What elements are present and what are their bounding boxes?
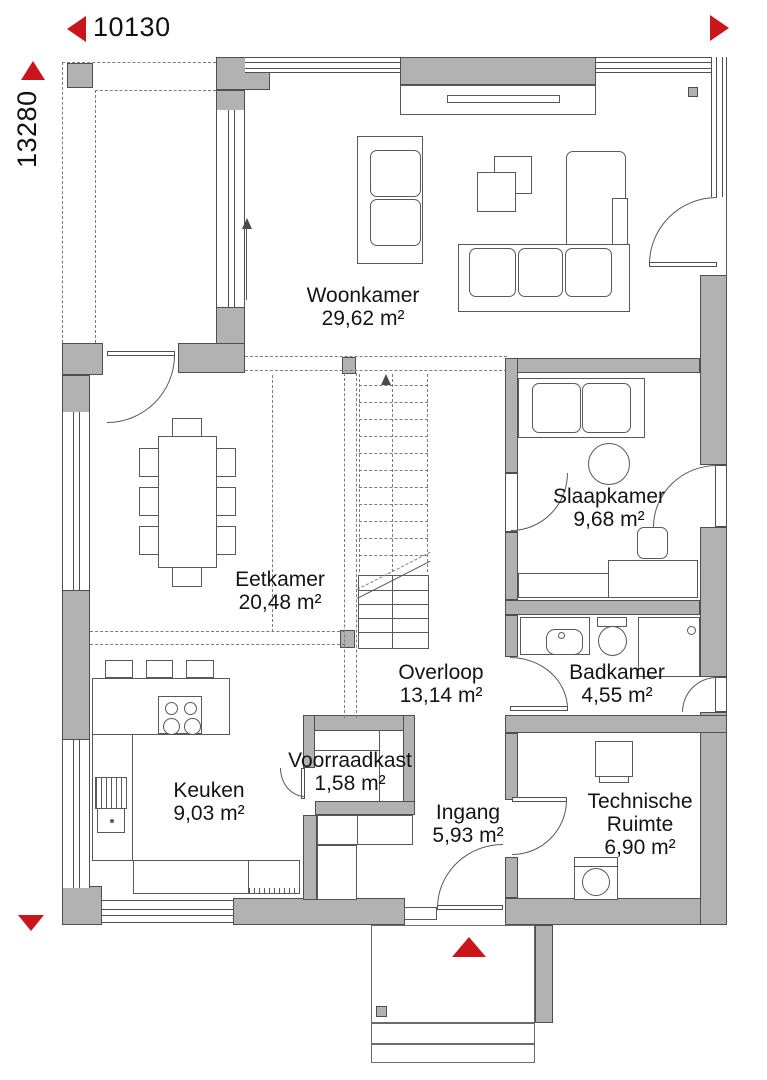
porch-pier — [535, 925, 553, 1023]
stairwell-dashed-line — [344, 373, 345, 718]
sofa-cushion — [518, 248, 563, 297]
room-label-keuken: Keuken 9,03 m² — [129, 779, 289, 825]
room-name: Badkamer — [537, 661, 697, 684]
width-arrow-icon — [67, 16, 86, 42]
drain-dot-icon — [110, 819, 114, 823]
bedroom-top-wall — [505, 358, 700, 373]
vide-dashed-line — [245, 356, 507, 357]
stair-tread — [359, 604, 428, 605]
window — [102, 900, 233, 923]
wall — [505, 615, 518, 657]
stair-tread — [359, 504, 428, 505]
wall-edge — [726, 197, 727, 277]
stair-tread — [359, 470, 428, 471]
room-label-slaapkamer: Slaapkamer 9,68 m² — [529, 485, 689, 531]
corner-sofa-frame — [612, 198, 628, 249]
stair-tread — [359, 402, 428, 403]
dining-chair — [139, 526, 159, 555]
desk-chair — [637, 527, 668, 559]
room-label-eetkamer: Eetkamer 20,48 m² — [200, 568, 360, 614]
column — [340, 630, 355, 648]
room-area: 9,03 m² — [129, 802, 289, 825]
wall-cabinet — [105, 660, 133, 678]
shower-drain-icon — [687, 626, 696, 635]
coffee-table — [477, 172, 516, 212]
height-arrow-icon — [21, 61, 45, 80]
stair-tread — [359, 618, 428, 619]
room-label-woonkamer: Woonkamer 29,62 m² — [283, 284, 443, 330]
window — [62, 740, 90, 888]
porch-step — [371, 1044, 535, 1063]
stairs-center-line — [392, 374, 393, 572]
stairs-edge — [427, 374, 428, 572]
desk-return — [518, 573, 609, 598]
window — [711, 57, 727, 197]
stairs-center-line — [392, 576, 393, 648]
right-arrow-icon — [710, 15, 729, 41]
room-area: 1,58 m² — [275, 772, 425, 795]
sofa-cushion — [469, 248, 516, 297]
window — [596, 57, 712, 73]
room-name: Overloop — [361, 661, 521, 684]
wall — [216, 307, 245, 344]
stair-tread — [359, 555, 428, 556]
terrace-dashed-line — [95, 90, 216, 91]
burner-icon — [165, 702, 178, 715]
sofa-cushion — [370, 150, 421, 197]
wall — [62, 343, 103, 375]
closet-divider — [357, 816, 358, 844]
room-area: 13,14 m² — [361, 684, 521, 707]
washing-machine-line — [575, 866, 617, 867]
dining-chair — [172, 567, 202, 587]
kitchen-dashed-line — [90, 631, 345, 632]
wall — [505, 733, 518, 800]
faucet-icon — [558, 632, 565, 639]
window — [62, 412, 90, 590]
wall — [505, 532, 518, 600]
wall — [178, 343, 245, 373]
chimney-wall — [400, 57, 596, 85]
wall — [505, 898, 727, 925]
stairs-up-arrow-icon — [381, 374, 391, 385]
sofa-cushion — [370, 199, 421, 246]
room-name: Woonkamer — [283, 284, 443, 307]
stair-tread — [359, 385, 428, 386]
stairs-lower — [358, 575, 429, 649]
boiler — [595, 741, 633, 777]
wall — [700, 275, 727, 465]
kitchen-sink-drainer — [95, 777, 127, 809]
wall — [216, 90, 245, 111]
sliding-arrow-icon — [242, 218, 252, 229]
terrace-dashed-line — [62, 62, 63, 343]
entrance-arrow-icon — [452, 937, 486, 957]
burner-icon — [163, 718, 180, 735]
dining-chair — [216, 487, 236, 516]
room-name: Ingang — [388, 801, 548, 824]
toilet-bowl — [598, 626, 627, 656]
door-arc — [107, 355, 175, 423]
threshold — [404, 907, 437, 920]
room-area: 9,68 m² — [529, 508, 689, 531]
room-area: 20,48 m² — [200, 591, 360, 614]
radiator-ticks — [249, 888, 299, 894]
room-area: 4,55 m² — [537, 684, 697, 707]
entry-closet — [317, 845, 357, 900]
room-label-overloop: Overloop 13,14 m² — [361, 661, 521, 707]
tv-slot — [447, 95, 560, 103]
bed-mattress — [582, 383, 631, 433]
round-table — [588, 443, 630, 485]
burner-icon — [184, 702, 197, 715]
wall-cabinet — [146, 660, 173, 678]
stair-tread — [359, 419, 428, 420]
stairwell-dashed-line — [356, 373, 357, 718]
stair-tread — [359, 436, 428, 437]
wall — [505, 715, 727, 733]
wall — [505, 358, 518, 473]
room-label-badkamer: Badkamer 4,55 m² — [537, 661, 697, 707]
burner-icon — [184, 718, 201, 735]
porch-step — [371, 1023, 535, 1044]
washing-machine-door-icon — [582, 868, 610, 896]
room-label-voorraadkast: Voorraadkast 1,58 m² — [275, 749, 425, 795]
dining-chair — [216, 448, 236, 477]
room-area: 6,90 m² — [575, 836, 705, 859]
stair-tread — [359, 632, 428, 633]
sofa-cushion — [565, 248, 612, 297]
terrace-dashed-line — [95, 90, 96, 343]
desk — [608, 560, 698, 598]
wall — [505, 600, 700, 615]
entrance-door-arc — [437, 844, 503, 908]
wall — [62, 886, 102, 925]
door-arc — [649, 197, 717, 264]
wall — [62, 590, 90, 740]
sliding-door-window — [216, 110, 245, 307]
dining-table — [158, 436, 217, 568]
room-name: Slaapkamer — [529, 485, 689, 508]
down-arrow-icon — [18, 915, 44, 931]
bed-mattress — [532, 383, 581, 433]
room-name: Technische Ruimte — [575, 790, 705, 836]
vide-dashed-line — [245, 370, 507, 371]
drain-square — [376, 1006, 387, 1017]
stair-tread — [359, 487, 428, 488]
wall — [505, 857, 518, 898]
wall — [700, 527, 727, 677]
sliding-arrow-line — [246, 229, 247, 300]
room-name: Voorraadkast — [275, 749, 425, 772]
terrace-column — [67, 63, 93, 88]
room-label-ingang: Ingang 5,93 m² — [388, 801, 548, 847]
dining-chair — [139, 487, 159, 516]
dining-chair — [172, 418, 202, 438]
wall — [233, 898, 405, 925]
pantry-wall — [303, 715, 415, 731]
dining-chair — [216, 526, 236, 555]
floorplan: 10130 13280 — [0, 0, 767, 1080]
wall — [303, 815, 317, 900]
kitchen-dashed-line — [90, 644, 345, 645]
thermostat-square — [688, 87, 698, 97]
window — [245, 57, 400, 73]
room-label-technische-ruimte: Technische Ruimte 6,90 m² — [575, 790, 705, 859]
boiler-base — [599, 776, 629, 783]
room-area: 5,93 m² — [388, 824, 548, 847]
room-area: 29,62 m² — [283, 307, 443, 330]
width-dimension-label: 10130 — [93, 12, 171, 43]
stairs-edge — [359, 374, 360, 572]
dining-chair — [139, 448, 159, 477]
room-name: Eetkamer — [200, 568, 360, 591]
wall — [62, 375, 90, 413]
column — [342, 357, 356, 374]
stair-tread — [359, 538, 428, 539]
height-dimension-label: 13280 — [12, 90, 43, 168]
room-name: Keuken — [129, 779, 289, 802]
stair-tread — [359, 521, 428, 522]
stair-tread — [359, 453, 428, 454]
wall-cabinet — [186, 660, 214, 678]
